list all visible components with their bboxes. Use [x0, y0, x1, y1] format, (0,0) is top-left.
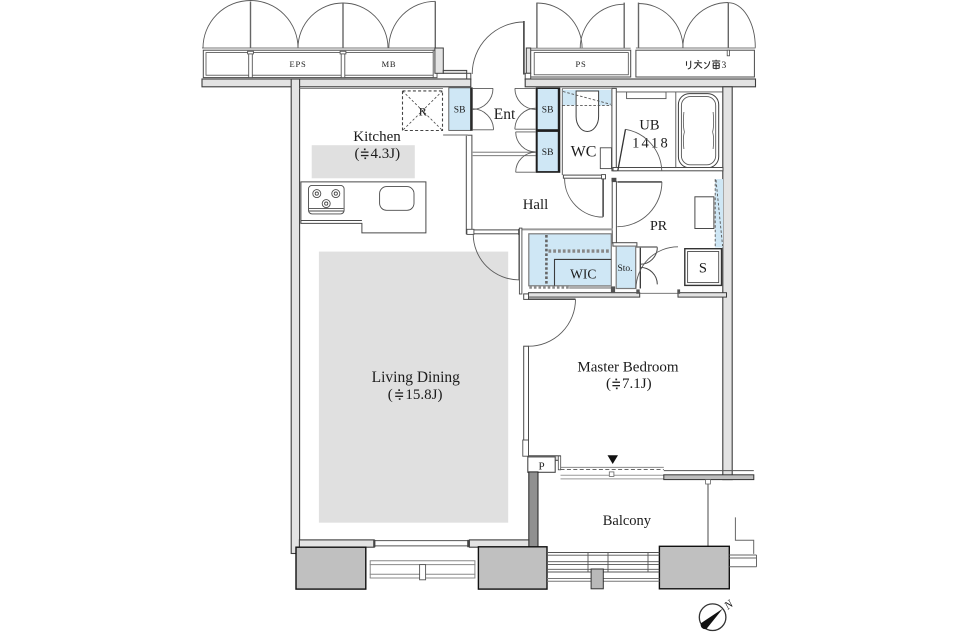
svg-text:PR: PR [650, 219, 668, 234]
svg-text:Kitchen: Kitchen [353, 129, 401, 145]
svg-text:SB: SB [454, 105, 466, 115]
svg-text:PS: PS [575, 59, 586, 69]
svg-text:Hall: Hall [523, 197, 548, 213]
svg-text:(: ( [606, 376, 611, 392]
svg-text:SB: SB [542, 105, 554, 115]
svg-text:R: R [419, 105, 427, 119]
svg-text:Master Bedroom: Master Bedroom [577, 359, 679, 375]
svg-text:7.1J): 7.1J) [622, 376, 652, 392]
svg-text:15.8J): 15.8J) [405, 387, 442, 403]
svg-text:UB: UB [639, 117, 659, 133]
svg-text:Sto.: Sto. [617, 264, 632, 274]
svg-text:4.3J): 4.3J) [371, 146, 401, 162]
svg-text:(: ( [388, 387, 393, 403]
svg-text:3: 3 [722, 61, 727, 71]
svg-text:EPS: EPS [289, 59, 306, 69]
svg-text:P: P [538, 460, 544, 472]
svg-text:WIC: WIC [570, 267, 596, 282]
svg-text:S: S [699, 261, 707, 277]
svg-text:Living Dining: Living Dining [372, 369, 461, 386]
svg-text:Ent: Ent [494, 106, 516, 123]
svg-text:SB: SB [542, 148, 554, 158]
svg-text:(: ( [355, 146, 360, 162]
svg-text:WC: WC [571, 144, 597, 161]
svg-text:MB: MB [382, 59, 397, 69]
svg-text:Balcony: Balcony [603, 513, 652, 529]
